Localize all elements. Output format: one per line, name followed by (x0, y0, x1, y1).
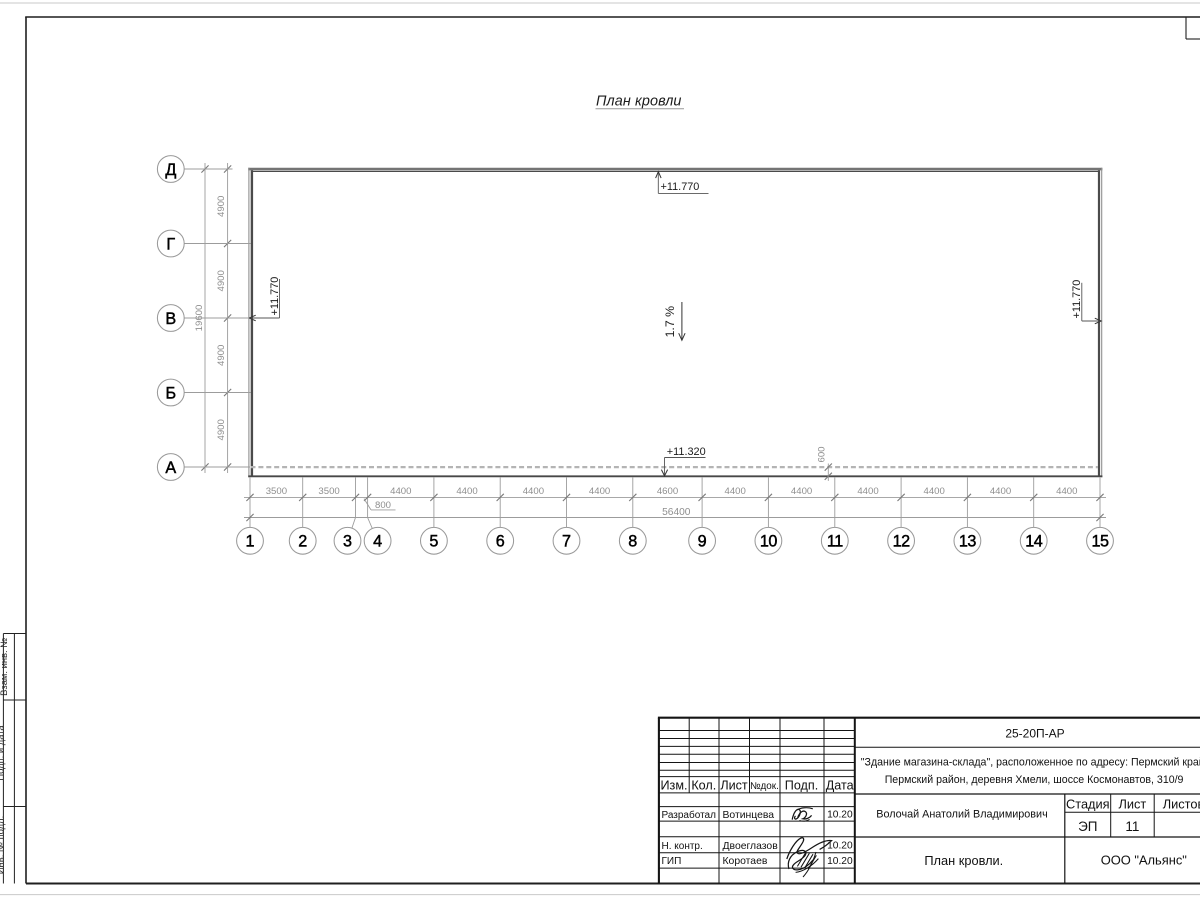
svg-text:ООО "Альянс": ООО "Альянс" (1101, 853, 1188, 868)
svg-text:1.7 %: 1.7 % (663, 306, 677, 338)
svg-text:+11.770: +11.770 (1071, 280, 1083, 319)
svg-text:Д: Д (165, 161, 176, 179)
svg-text:"Здание магазина-склада", расп: "Здание магазина-склада", расположенное … (861, 756, 1200, 768)
svg-text:10.20: 10.20 (827, 810, 853, 821)
svg-text:ГИП: ГИП (662, 856, 682, 867)
svg-text:11: 11 (827, 533, 843, 551)
svg-text:Разработал: Разработал (662, 809, 717, 821)
svg-text:4900: 4900 (216, 196, 227, 217)
svg-text:4400: 4400 (791, 486, 812, 497)
svg-text:7: 7 (562, 533, 571, 551)
svg-text:10.20: 10.20 (827, 841, 853, 852)
svg-text:600: 600 (817, 446, 828, 462)
svg-text:Изм.: Изм. (661, 779, 688, 793)
svg-text:3500: 3500 (318, 486, 339, 497)
svg-text:4900: 4900 (216, 419, 227, 440)
svg-text:9: 9 (698, 533, 707, 551)
svg-text:800: 800 (375, 500, 391, 511)
svg-text:11: 11 (1125, 819, 1139, 834)
svg-text:15: 15 (1091, 533, 1109, 551)
svg-text:4400: 4400 (523, 486, 544, 497)
svg-text:Лист: Лист (1118, 797, 1146, 812)
svg-text:Двоеглазов: Двоеглазов (723, 841, 779, 852)
svg-text:12: 12 (893, 533, 911, 551)
svg-text:3500: 3500 (266, 486, 287, 497)
svg-text:4400: 4400 (390, 486, 411, 497)
svg-text:План кровли.: План кровли. (924, 853, 1003, 868)
svg-text:Кол.: Кол. (691, 779, 716, 793)
svg-text:2: 2 (298, 533, 307, 551)
svg-text:А: А (165, 459, 176, 477)
svg-text:3: 3 (343, 533, 352, 551)
svg-text:4400: 4400 (857, 486, 878, 497)
svg-text:Дата: Дата (826, 779, 854, 793)
svg-text:1: 1 (245, 533, 254, 551)
svg-text:4400: 4400 (924, 486, 945, 497)
svg-text:13: 13 (959, 533, 977, 551)
svg-text:25-20П-АР: 25-20П-АР (1005, 727, 1064, 741)
svg-text:+11.770: +11.770 (269, 277, 281, 316)
svg-text:Коротаев: Коротаев (723, 856, 768, 867)
svg-text:Подп.: Подп. (785, 779, 818, 793)
svg-text:56400: 56400 (662, 507, 691, 518)
svg-text:4: 4 (373, 533, 382, 551)
svg-text:10.20: 10.20 (827, 856, 853, 867)
svg-text:Взам. инв. №: Взам. инв. № (0, 638, 9, 696)
svg-text:14: 14 (1025, 533, 1043, 551)
svg-text:6: 6 (496, 533, 505, 551)
svg-text:ЭП: ЭП (1078, 819, 1097, 834)
svg-text:4400: 4400 (589, 486, 610, 497)
svg-text:Г: Г (166, 235, 175, 253)
svg-text:Н. контр.: Н. контр. (662, 841, 703, 852)
svg-text:4400: 4400 (725, 486, 746, 497)
svg-text:Листов: Листов (1163, 797, 1200, 812)
svg-text:5: 5 (429, 533, 438, 551)
svg-text:Лист: Лист (720, 779, 748, 793)
svg-text:4900: 4900 (216, 345, 227, 366)
svg-text:Подп. и дата: Подп. и дата (0, 725, 6, 781)
svg-text:+11.770: +11.770 (661, 181, 700, 193)
svg-text:8: 8 (628, 533, 637, 551)
svg-text:Б: Б (165, 384, 176, 402)
svg-text:Вотинцева: Вотинцева (723, 810, 775, 821)
svg-text:+11.320: +11.320 (667, 446, 706, 458)
svg-text:4400: 4400 (990, 486, 1011, 497)
svg-text:4600: 4600 (657, 486, 678, 497)
svg-text:План кровли: План кровли (596, 93, 682, 109)
svg-text:Стадия: Стадия (1066, 797, 1110, 812)
svg-text:10: 10 (760, 533, 778, 551)
svg-text:Пермский район, деревня Хмели,: Пермский район, деревня Хмели, шоссе Кос… (885, 774, 1184, 786)
svg-text:№док.: №док. (750, 781, 779, 792)
svg-text:Волочай Анатолий Владимирович: Волочай Анатолий Владимирович (876, 809, 1047, 821)
svg-text:Инв. № подл.: Инв. № подл. (0, 816, 6, 874)
svg-text:В: В (165, 310, 176, 328)
svg-text:4900: 4900 (216, 270, 227, 291)
svg-text:4400: 4400 (1056, 486, 1077, 497)
svg-text:4400: 4400 (456, 486, 477, 497)
